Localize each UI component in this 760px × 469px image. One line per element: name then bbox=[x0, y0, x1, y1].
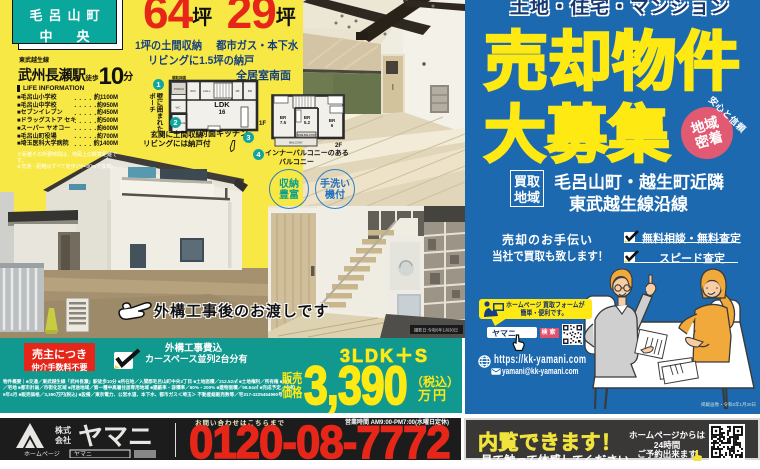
svg-text:ヤマニ: ヤマニ bbox=[78, 423, 153, 451]
svg-text:FB: FB bbox=[236, 89, 240, 93]
svg-text:2F: 2F bbox=[335, 143, 342, 149]
svg-text:LDK: LDK bbox=[214, 100, 230, 109]
svg-text:PORCH: PORCH bbox=[174, 87, 184, 91]
svg-text:会社: 会社 bbox=[55, 435, 71, 445]
svg-text:1F: 1F bbox=[259, 121, 266, 127]
svg-text:5.2: 5.2 bbox=[304, 120, 311, 125]
svg-text:HALL: HALL bbox=[203, 89, 211, 93]
svg-text:撮影日:令和6年1月30日: 撮影日:令和6年1月30日 bbox=[414, 327, 458, 334]
svg-text:WIC: WIC bbox=[190, 89, 197, 93]
svg-text:7.5: 7.5 bbox=[280, 120, 287, 125]
svg-text:株式: 株式 bbox=[55, 425, 71, 435]
svg-text:BALCONY: BALCONY bbox=[289, 141, 303, 145]
svg-text:WIDE BALCONY: WIDE BALCONY bbox=[297, 133, 317, 137]
svg-text:16: 16 bbox=[219, 110, 226, 116]
svg-text:ホームページ: ホームページ bbox=[24, 451, 60, 458]
svg-text:間取詳図: 間取詳図 bbox=[172, 75, 186, 80]
svg-text:WC: WC bbox=[176, 106, 182, 110]
svg-text:ヤマニ: ヤマニ bbox=[74, 451, 92, 458]
